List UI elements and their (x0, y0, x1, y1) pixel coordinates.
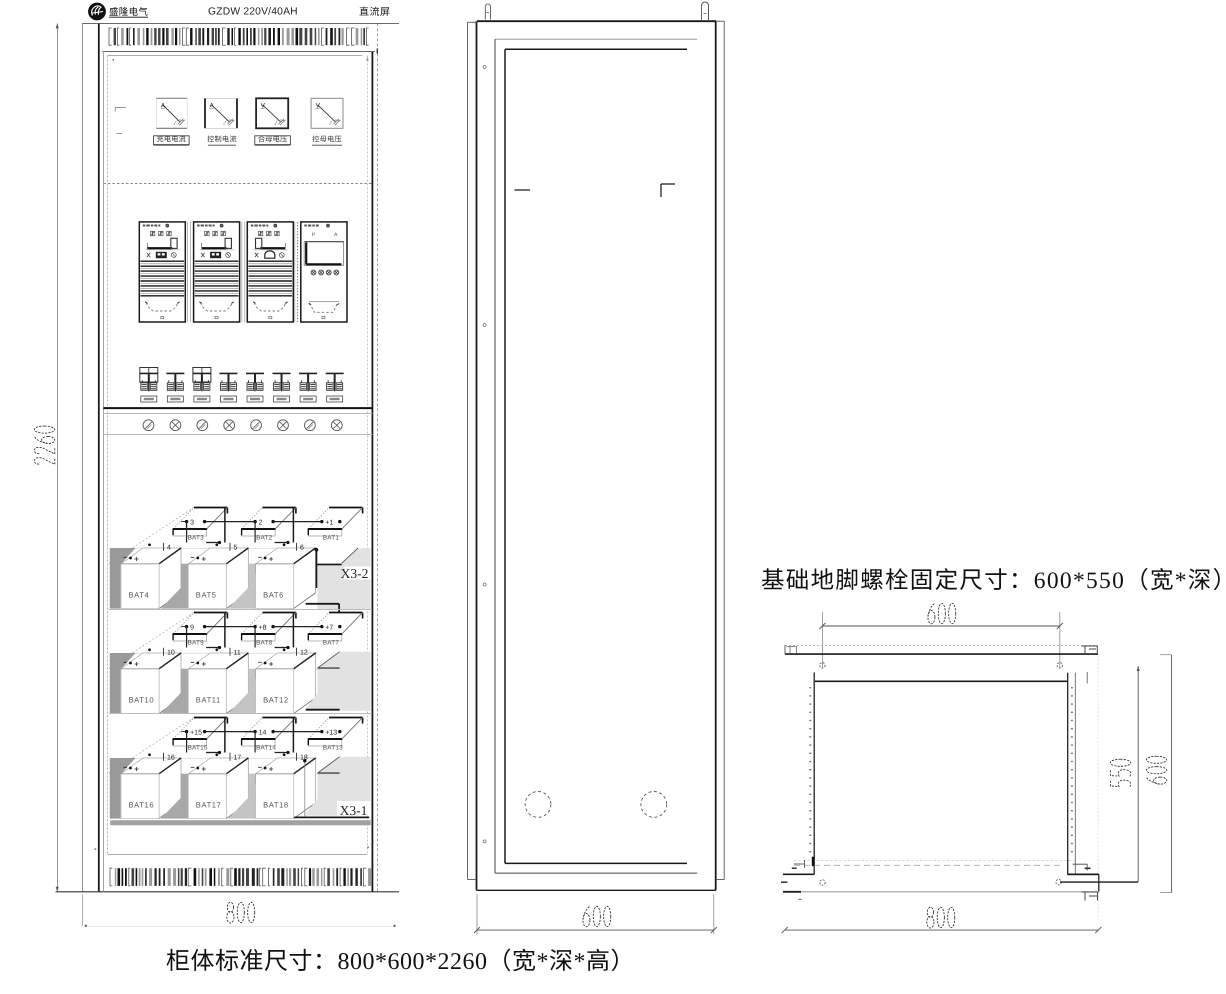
svg-text:6: 6 (300, 544, 304, 551)
svg-text:+15: +15 (190, 729, 202, 736)
svg-text:BAT6: BAT6 (263, 590, 284, 599)
svg-text:A: A (210, 102, 215, 109)
svg-text:4: 4 (167, 544, 171, 551)
svg-text:柜体标准尺寸：800*600*2260（宽*深*高）: 柜体标准尺寸：800*600*2260（宽*深*高） (166, 948, 635, 975)
svg-text:BAT11: BAT11 (196, 695, 221, 704)
svg-text:16: 16 (167, 754, 175, 761)
svg-text:+7: +7 (325, 624, 333, 631)
svg-text:3: 3 (190, 519, 194, 526)
svg-text:GZDW 220V/40AH: GZDW 220V/40AH (208, 6, 298, 17)
svg-text:BAT17: BAT17 (196, 800, 222, 809)
svg-text:+1: +1 (325, 519, 333, 526)
svg-text:BAT5: BAT5 (196, 590, 217, 599)
svg-text:基础地脚螺栓固定尺寸：600*550（宽*深）: 基础地脚螺栓固定尺寸：600*550（宽*深） (761, 567, 1226, 594)
svg-text:控母电压: 控母电压 (312, 135, 342, 144)
svg-text:+13: +13 (325, 729, 337, 736)
svg-text:BAT1: BAT1 (323, 534, 340, 541)
svg-text:11: 11 (234, 649, 241, 656)
svg-text:+8: +8 (259, 624, 267, 631)
svg-text:BAT8: BAT8 (256, 639, 273, 646)
svg-text:BAT13: BAT13 (323, 744, 343, 751)
svg-text:2: 2 (259, 519, 263, 526)
svg-text:V: V (316, 102, 321, 109)
svg-text:BAT18: BAT18 (263, 800, 289, 809)
svg-text:控制电流: 控制电流 (207, 135, 237, 144)
svg-text:14: 14 (259, 729, 267, 736)
svg-text:BAT16: BAT16 (129, 800, 155, 809)
svg-text:BAT10: BAT10 (129, 695, 155, 704)
svg-text:BAT7: BAT7 (323, 639, 340, 646)
svg-text:BAT4: BAT4 (129, 590, 150, 599)
svg-text:盛隆电气: 盛隆电气 (109, 7, 148, 18)
svg-text:BAT14: BAT14 (256, 744, 276, 751)
svg-text:BAT3: BAT3 (188, 534, 205, 541)
svg-text:BAT9: BAT9 (188, 639, 205, 646)
svg-text:A: A (161, 102, 166, 109)
svg-text:10: 10 (167, 649, 175, 656)
svg-text:12: 12 (300, 649, 308, 656)
svg-text:BAT15: BAT15 (188, 744, 208, 751)
svg-text:BAT2: BAT2 (256, 534, 273, 541)
svg-text:直流屏: 直流屏 (359, 6, 391, 18)
svg-text:BAT12: BAT12 (263, 695, 289, 704)
svg-text:X3-2: X3-2 (341, 566, 369, 581)
svg-text:9: 9 (190, 624, 194, 631)
svg-text:17: 17 (234, 754, 242, 761)
svg-text:X3-1: X3-1 (340, 803, 368, 818)
svg-text:5: 5 (234, 544, 238, 551)
svg-text:V: V (261, 102, 266, 109)
svg-text:4: 4 (366, 57, 369, 63)
